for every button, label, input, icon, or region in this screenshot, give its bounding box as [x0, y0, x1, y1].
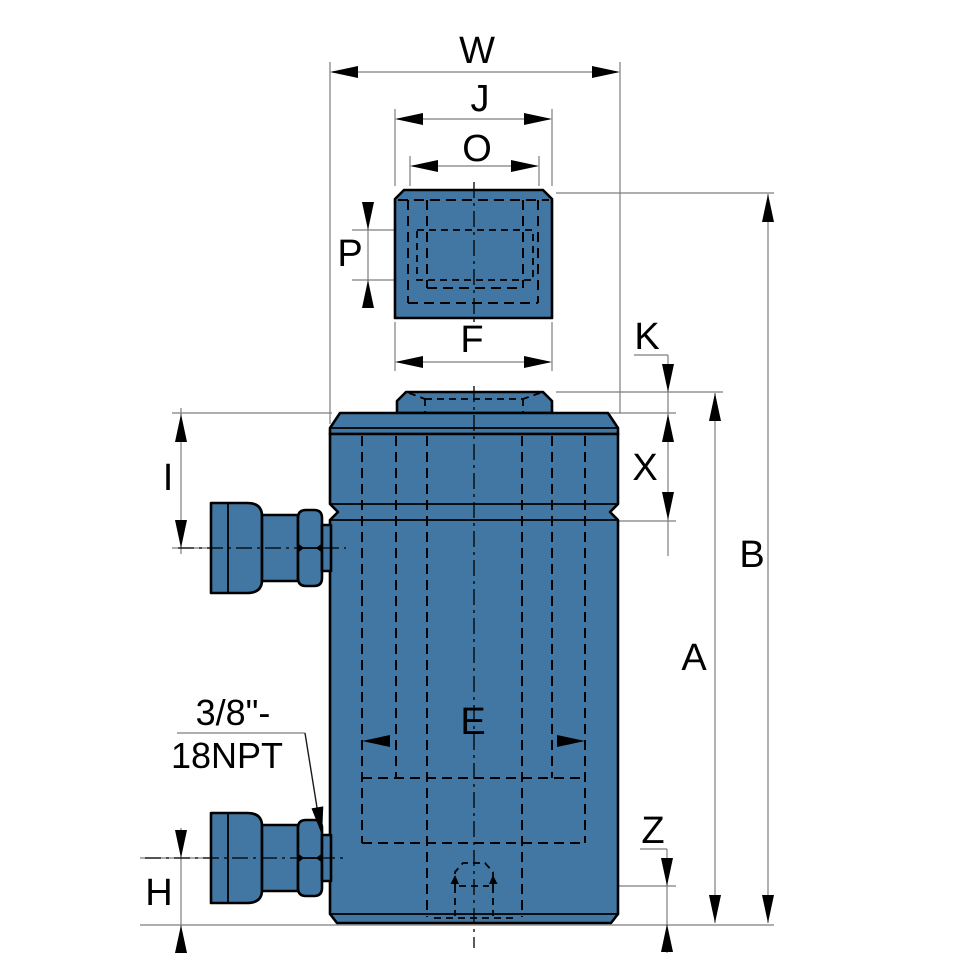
dim-label-z: Z	[641, 810, 664, 852]
arrow-p-top	[362, 202, 374, 230]
arrow-z-bottom	[661, 924, 673, 952]
arrow-x-top	[662, 414, 674, 442]
arrow-f-right	[524, 356, 552, 368]
drawing-canvas: W J O P F K X I B A E Z H 3/8"- 18NPT	[0, 0, 980, 980]
arrow-x-bottom	[662, 492, 674, 520]
dim-label-x: X	[632, 447, 657, 489]
arrow-i-top	[175, 414, 187, 442]
arrow-b-top	[762, 194, 774, 222]
dim-label-e: E	[460, 701, 485, 743]
arrow-a-top	[709, 393, 721, 421]
dim-label-o: O	[462, 128, 492, 170]
arrow-z-top	[661, 858, 673, 886]
port-size-label-line2: 18NPT	[171, 735, 283, 776]
arrow-w-left	[330, 66, 358, 78]
arrow-o-left	[410, 160, 438, 172]
arrow-b-bottom	[762, 895, 774, 923]
arrow-o-right	[511, 160, 539, 172]
leader-line	[305, 733, 319, 820]
cylinder-dimension-drawing: W J O P F K X I B A E Z H 3/8"- 18NPT	[0, 0, 980, 980]
port-size-label-line1: 3/8"-	[196, 692, 271, 733]
arrow-i-bottom	[175, 520, 187, 548]
dim-label-j: J	[471, 78, 490, 120]
arrow-j-right	[524, 113, 552, 125]
arrow-a-bottom	[709, 895, 721, 923]
arrow-j-left	[395, 113, 423, 125]
dim-label-k: K	[634, 316, 659, 358]
dim-label-w: W	[459, 30, 495, 72]
arrow-h-top	[175, 830, 187, 858]
blue-parts	[211, 190, 618, 923]
arrow-k-top	[662, 364, 674, 392]
dim-label-i: I	[163, 457, 174, 499]
arrow-f-left	[395, 356, 423, 368]
dim-label-a: A	[681, 637, 707, 679]
dim-label-p: P	[337, 233, 362, 275]
dim-label-f: F	[460, 319, 483, 361]
arrow-h-bottom	[175, 925, 187, 953]
arrow-p-bottom	[362, 280, 374, 308]
dim-label-h: H	[145, 872, 172, 914]
arrow-w-right	[592, 66, 620, 78]
dim-label-b: B	[739, 534, 764, 576]
